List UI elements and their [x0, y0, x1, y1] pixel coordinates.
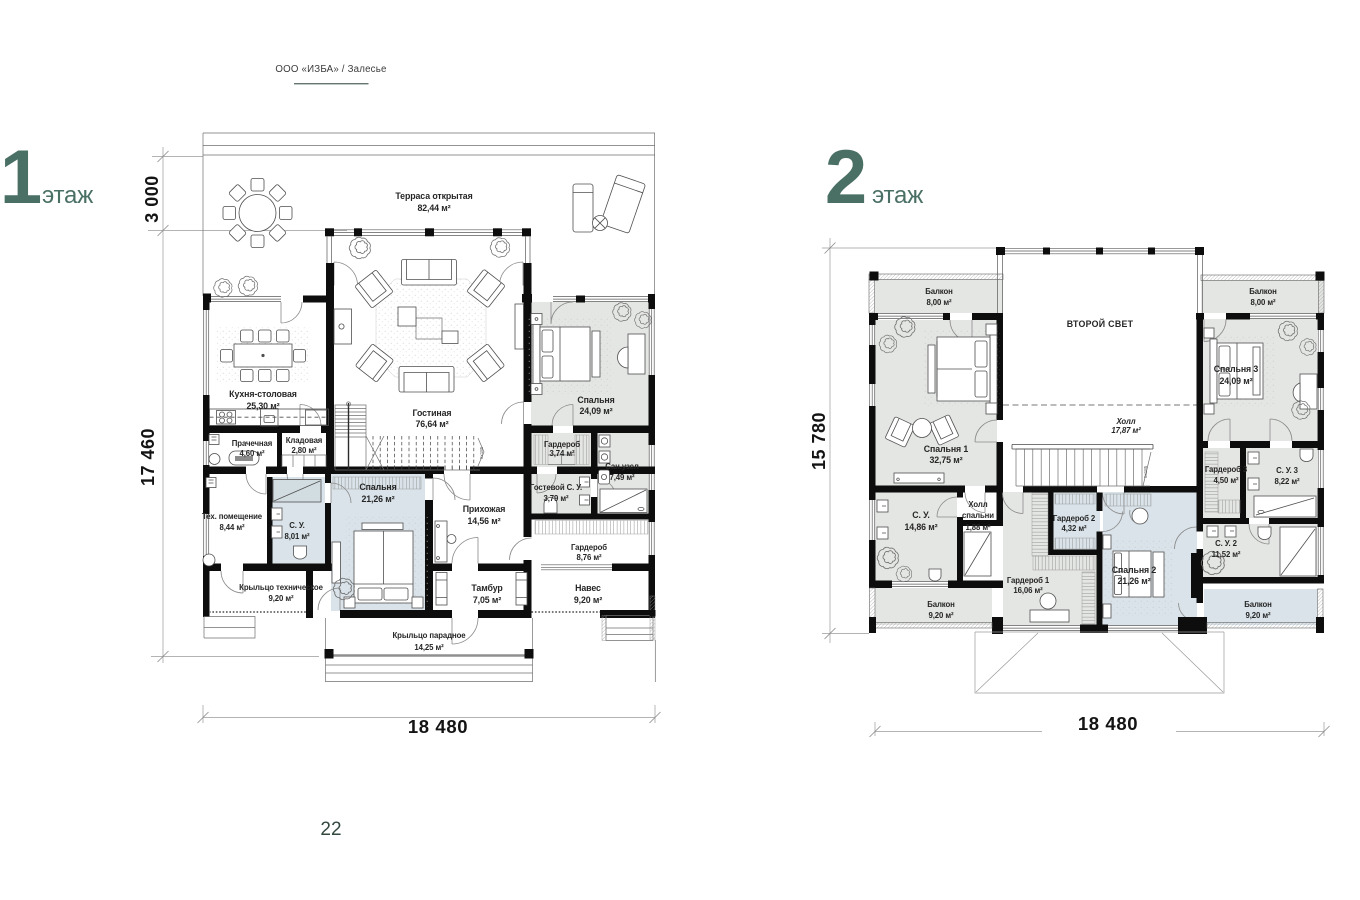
- svg-text:Крыльцо техническое: Крыльцо техническое: [239, 583, 323, 592]
- svg-text:С. У.: С. У.: [912, 510, 930, 520]
- svg-text:2: 2: [825, 135, 867, 220]
- svg-text:Холл: Холл: [1116, 417, 1136, 426]
- svg-text:11,52 м²: 11,52 м²: [1212, 550, 1241, 559]
- svg-text:Спальня 3: Спальня 3: [1214, 364, 1259, 374]
- svg-text:Кладовая: Кладовая: [286, 436, 323, 445]
- svg-text:Тех. помещение: Тех. помещение: [202, 512, 263, 521]
- svg-text:18 480: 18 480: [408, 716, 468, 737]
- svg-text:24,09 м²: 24,09 м²: [1219, 376, 1252, 386]
- svg-text:Прихожая: Прихожая: [463, 504, 506, 514]
- svg-text:Балкон: Балкон: [927, 600, 955, 609]
- svg-text:82,44 м²: 82,44 м²: [417, 203, 450, 213]
- svg-text:17,87 м²: 17,87 м²: [1111, 426, 1141, 435]
- svg-text:76,64 м²: 76,64 м²: [415, 419, 448, 429]
- svg-text:8,22 м²: 8,22 м²: [1274, 477, 1300, 486]
- svg-text:18 480: 18 480: [1078, 713, 1138, 734]
- svg-text:8,76 м²: 8,76 м²: [576, 553, 602, 562]
- svg-text:ВТОРОЙ СВЕТ: ВТОРОЙ СВЕТ: [1067, 318, 1134, 329]
- svg-text:Гостиная: Гостиная: [413, 408, 452, 418]
- svg-text:Терраса открытая: Терраса открытая: [395, 191, 472, 201]
- svg-text:5x185: 5x185: [479, 446, 484, 459]
- svg-text:С. У.: С. У.: [289, 521, 305, 530]
- svg-text:25,30 м²: 25,30 м²: [246, 401, 279, 411]
- svg-text:ООО «ИЗБА» / Залесье: ООО «ИЗБА» / Залесье: [275, 64, 386, 75]
- svg-text:22: 22: [320, 819, 341, 840]
- svg-text:2,80 м²: 2,80 м²: [291, 446, 317, 455]
- svg-text:9,20 м²: 9,20 м²: [1245, 611, 1271, 620]
- svg-text:спальни: спальни: [962, 511, 994, 520]
- svg-text:8,00 м²: 8,00 м²: [926, 298, 952, 307]
- svg-text:21,26 м²: 21,26 м²: [361, 494, 394, 504]
- svg-text:Гостевой С. У.: Гостевой С. У.: [530, 483, 582, 492]
- svg-text:4,50 м²: 4,50 м²: [1213, 476, 1239, 485]
- svg-text:24,09 м²: 24,09 м²: [579, 406, 612, 416]
- svg-text:32,75 м²: 32,75 м²: [929, 455, 962, 465]
- svg-text:Кухня-столовая: Кухня-столовая: [229, 389, 297, 399]
- svg-text:Прачечная: Прачечная: [232, 439, 272, 448]
- svg-text:14,56 м²: 14,56 м²: [467, 516, 500, 526]
- svg-text:Спальня: Спальня: [577, 395, 614, 405]
- svg-text:Балкон: Балкон: [1249, 287, 1277, 296]
- svg-text:Балкон: Балкон: [925, 287, 953, 296]
- svg-text:16,06 м²: 16,06 м²: [1013, 586, 1043, 595]
- svg-text:С. У. 2: С. У. 2: [1215, 539, 1238, 548]
- svg-text:5x185: 5x185: [1143, 465, 1148, 478]
- svg-text:Холл: Холл: [968, 500, 987, 509]
- svg-text:1,88 м²: 1,88 м²: [965, 523, 991, 532]
- svg-text:Гардероб 3: Гардероб 3: [1205, 465, 1248, 474]
- svg-text:9,20 м²: 9,20 м²: [574, 595, 602, 605]
- svg-text:Навес: Навес: [575, 583, 601, 593]
- svg-text:7,49 м²: 7,49 м²: [609, 473, 635, 482]
- svg-text:Сан.узел: Сан.узел: [605, 462, 639, 471]
- svg-text:9,20 м²: 9,20 м²: [268, 594, 294, 603]
- svg-text:С. У. 3: С. У. 3: [1276, 466, 1299, 475]
- svg-text:14,86 м²: 14,86 м²: [904, 522, 937, 532]
- svg-text:Гардероб 2: Гардероб 2: [1053, 514, 1096, 523]
- svg-text:15 780: 15 780: [809, 412, 829, 470]
- svg-text:Спальня 1: Спальня 1: [924, 444, 969, 454]
- svg-text:Спальня: Спальня: [359, 482, 396, 492]
- svg-text:3,79 м²: 3,79 м²: [543, 494, 569, 503]
- svg-text:14,25 м²: 14,25 м²: [414, 643, 444, 652]
- svg-text:1: 1: [0, 135, 42, 220]
- svg-text:8,01 м²: 8,01 м²: [284, 532, 310, 541]
- svg-text:Гардероб: Гардероб: [544, 440, 580, 449]
- svg-text:4,32 м²: 4,32 м²: [1061, 524, 1087, 533]
- svg-text:Крыльцо парадное: Крыльцо парадное: [393, 631, 467, 640]
- svg-text:8,00 м²: 8,00 м²: [1250, 298, 1276, 307]
- svg-text:17 460: 17 460: [138, 428, 158, 486]
- svg-text:3,74 м²: 3,74 м²: [549, 449, 575, 458]
- svg-text:этаж: этаж: [872, 182, 923, 209]
- svg-text:Балкон: Балкон: [1244, 600, 1272, 609]
- svg-text:Тамбур: Тамбур: [471, 583, 503, 593]
- svg-text:Гардероб: Гардероб: [571, 543, 607, 552]
- svg-text:этаж: этаж: [42, 182, 93, 209]
- svg-text:Спальня 2: Спальня 2: [1112, 565, 1157, 575]
- svg-text:9,20 м²: 9,20 м²: [928, 611, 954, 620]
- svg-text:21,26 м²: 21,26 м²: [1117, 576, 1150, 586]
- svg-text:3 000: 3 000: [142, 175, 162, 223]
- svg-text:8,44 м²: 8,44 м²: [219, 523, 245, 532]
- svg-text:4,60 м²: 4,60 м²: [239, 449, 265, 458]
- svg-text:Гардероб 1: Гардероб 1: [1007, 576, 1050, 585]
- svg-text:7,05 м²: 7,05 м²: [473, 595, 501, 605]
